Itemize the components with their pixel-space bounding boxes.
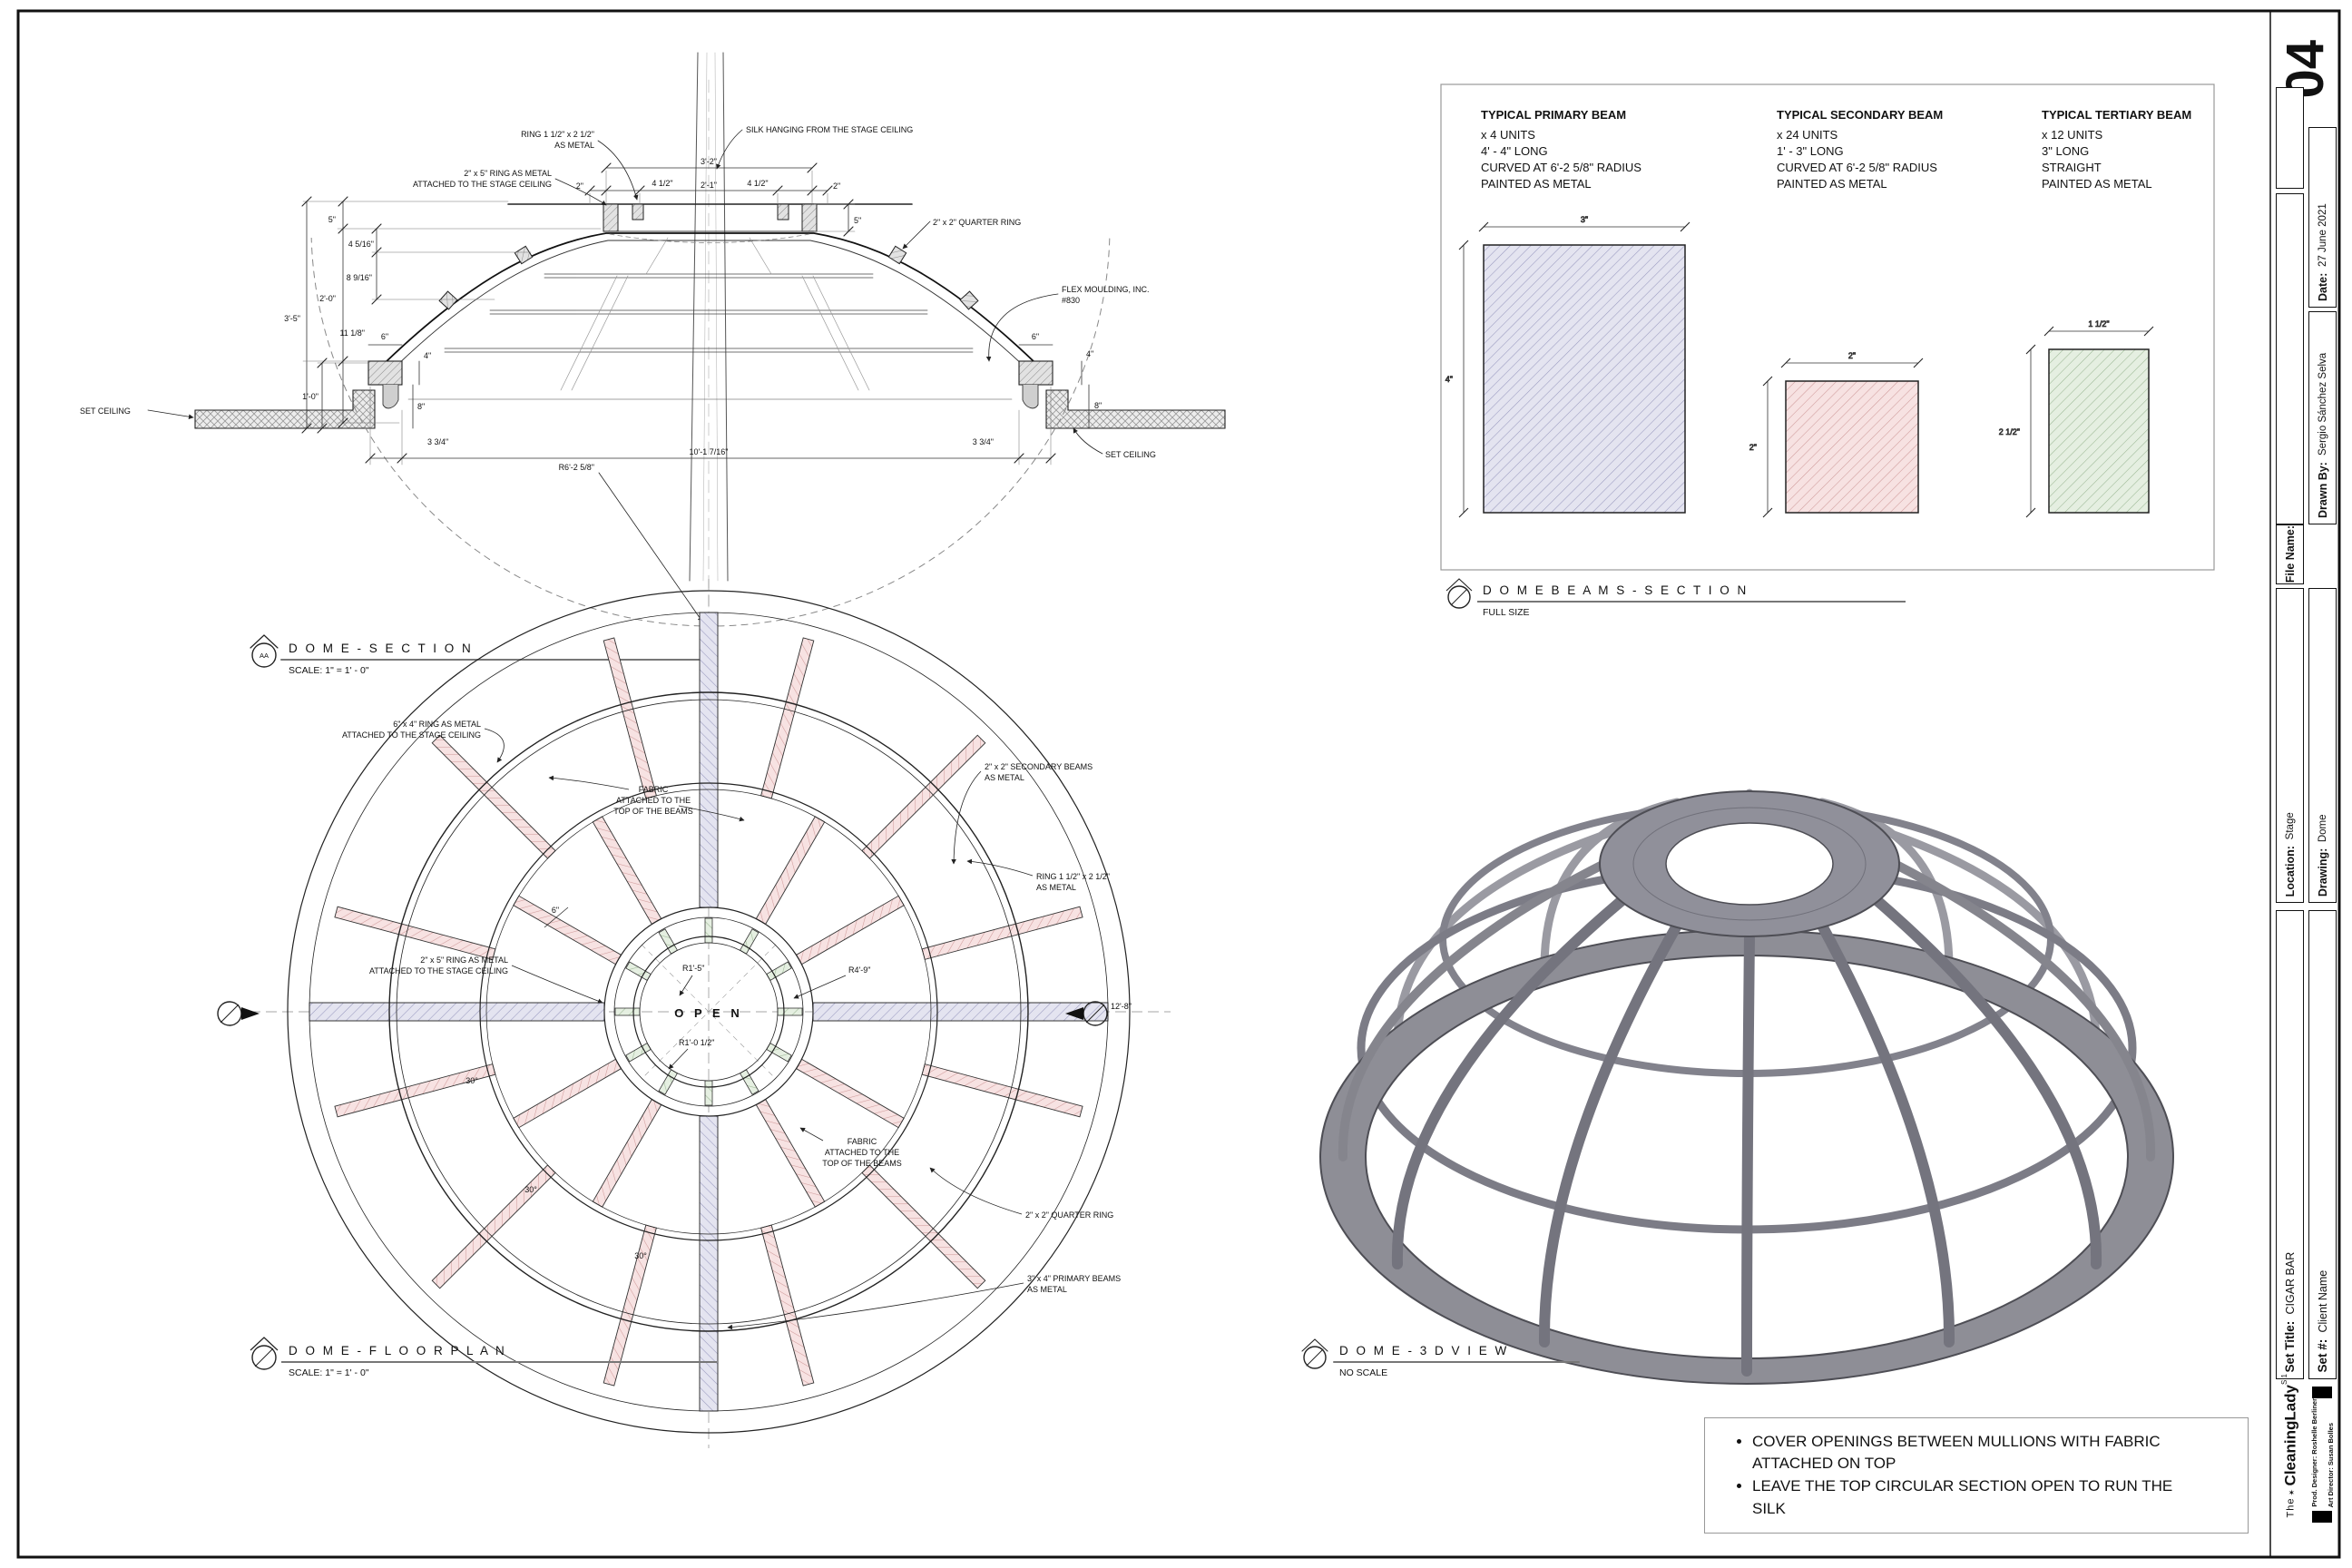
beam-spec-line: x 24 UNITS [1777, 128, 1838, 142]
title-block: 04 File Name: Location:Stage Set Title:C… [2270, 11, 2339, 1557]
field-value: Stage [2285, 812, 2296, 839]
field-value: CIGAR BAR [2284, 1252, 2297, 1315]
dim-label: 4 5/16" [348, 240, 374, 249]
field-label: Set Title: [2283, 1321, 2297, 1373]
drawing-title: D O M E - S E C T I O N [289, 642, 473, 655]
annotation: TOP OF THE BEAMS [613, 807, 693, 816]
moulding-and-ceiling [195, 361, 1225, 428]
notes-box: COVER OPENINGS BETWEEN MULLIONS WITH FAB… [1704, 1417, 2249, 1534]
dim-label: 4 1/2" [747, 179, 768, 188]
beam-spec-line: x 4 UNITS [1481, 128, 1535, 142]
dim-label: 5" [328, 215, 336, 224]
note-item: COVER OPENINGS BETWEEN MULLIONS WITH FAB… [1752, 1431, 2188, 1475]
annotation: RING 1 1/2" x 2 1/2" [521, 130, 594, 139]
annotation: ATTACHED TO THE [825, 1148, 899, 1157]
beam-spec-text: TYPICAL PRIMARY BEAM x 4 UNITS 4' - 4" L… [1481, 108, 2191, 191]
drawing-sheet: SILK HANGING FROM THE STAGE CEILING RING… [0, 0, 2352, 1568]
dim-label: 30° [465, 1076, 478, 1085]
dim-label: 4" [424, 351, 431, 360]
titleblock-drawing: Drawing:Dome [2308, 588, 2337, 903]
sheet-canvas: SILK HANGING FROM THE STAGE CEILING RING… [0, 0, 2352, 1568]
drawing-title: D O M E - 3 D V I E W [1339, 1344, 1509, 1357]
dim-label: 30° [524, 1185, 537, 1194]
dim-label: 10'-1 7/16" [690, 447, 729, 456]
dim-label: 5" [854, 216, 861, 225]
dome-floor-plan-drawing: 6" x 4" RING AS METAL ATTACHED TO THE ST… [218, 579, 1171, 1448]
dim-label: 2" [1749, 443, 1757, 452]
dim-label: R4'-9" [848, 965, 870, 975]
dim-label: 11 1/8" [339, 328, 365, 338]
dim-label: 3 3/4" [973, 437, 994, 446]
drawing-scale: NO SCALE [1339, 1367, 1387, 1378]
titleblock-empty-box [2276, 193, 2304, 524]
beam-spec-line: 1' - 3" LONG [1777, 144, 1844, 158]
logo-superscript: S.1 [2280, 1374, 2288, 1385]
annotation: ATTACHED TO THE STAGE CEILING [413, 180, 552, 189]
field-value: Client Name [2317, 1270, 2329, 1333]
annotation: FABRIC [639, 785, 669, 794]
annotation: SILK HANGING FROM THE STAGE CEILING [746, 125, 913, 134]
annotation: #830 [1062, 296, 1080, 305]
floor-plan-title: D O M E - F L O O R P L A N SCALE: 1" = … [250, 1338, 717, 1378]
note-item: LEAVE THE TOP CIRCULAR SECTION OPEN TO R… [1752, 1475, 2188, 1520]
company-logo: The✶CleaningLadyS.1 [2276, 1387, 2304, 1523]
annotation: TOP OF THE BEAMS [822, 1159, 902, 1168]
sun-icon: ✶ [2286, 1486, 2295, 1495]
titleblock-location: Location:Stage [2276, 588, 2304, 903]
dim-label: 2" [576, 181, 583, 191]
ring-blocks [603, 204, 817, 231]
credit-line: Art Director: Susan Bolles [2327, 1423, 2335, 1507]
dome-section-drawing: SILK HANGING FROM THE STAGE CEILING RING… [80, 0, 1225, 676]
dim-label: 8 9/16" [347, 273, 372, 282]
dim-label: 8" [417, 402, 425, 411]
field-label: Drawing: [2317, 848, 2329, 897]
beam-spec-line: STRAIGHT [2042, 161, 2102, 174]
logo-text-main: CleaningLady [2281, 1385, 2298, 1485]
field-label: Location: [2284, 846, 2297, 897]
annotation: SET CEILING [80, 407, 131, 416]
beam-spec-line: x 12 UNITS [2042, 128, 2103, 142]
annotation: 2" x 5" RING AS METAL [464, 169, 552, 178]
annotation: 2" x 2" QUARTER RING [933, 218, 1021, 227]
drawing-scale: FULL SIZE [1483, 607, 1530, 618]
dim-label: R1'-0 1/2" [679, 1038, 714, 1047]
annotation: RING 1 1/2" x 2 1/2" [1036, 872, 1110, 881]
dome-3d-view: D O M E - 3 D V I E W NO SCALE [1302, 791, 2173, 1384]
dim-label: 3'-5" [284, 314, 300, 323]
beam-spec-line: PAINTED AS METAL [1777, 177, 1887, 191]
dim-label: 12'-8" [1111, 1002, 1132, 1011]
field-label: Set #: [2316, 1339, 2329, 1373]
annotation: 2" x 5" RING AS METAL [420, 955, 508, 965]
titleblock-date: Date:27 June 2021 [2308, 127, 2337, 308]
dim-label: 30° [634, 1251, 647, 1260]
field-value: Dome [2318, 814, 2328, 842]
logo-text-the: The [2285, 1497, 2296, 1517]
dim-label: 6" [381, 332, 388, 341]
field-label: Drawn By: [2317, 462, 2329, 518]
annotation: FLEX MOULDING, INC. [1062, 285, 1150, 294]
dim-label: 4 1/2" [652, 179, 672, 188]
annotation: ATTACHED TO THE STAGE CEILING [342, 730, 481, 740]
dim-label: 2'-1" [701, 181, 717, 190]
field-value: Sergio Sánchez Selva [2318, 353, 2328, 456]
beam-spec-line: 4' - 4" LONG [1481, 144, 1548, 158]
annotation: 2" x 2" SECONDARY BEAMS [985, 762, 1093, 771]
titleblock-set-number: Set #:Client Name [2308, 910, 2337, 1379]
dim-label: 1 1/2" [2088, 319, 2109, 328]
annotation: SET CEILING [1105, 450, 1156, 459]
beam-spec-line: CURVED AT 6'-2 5/8" RADIUS [1481, 161, 1641, 174]
annotation: 6" x 4" RING AS METAL [393, 720, 481, 729]
credit-line: Prod. Designer: Roshelle Berliner [2310, 1398, 2318, 1507]
annotation: ATTACHED TO THE STAGE CEILING [369, 966, 508, 975]
dim-label: 2'-0" [319, 294, 336, 303]
field-label: File Name: [2284, 525, 2297, 583]
top-ring [1600, 791, 1899, 936]
dim-label: 3 3/4" [427, 437, 448, 446]
drawing-title: D O M E B E A M S - S E C T I O N [1483, 583, 1749, 597]
dim-label: 3'-2" [701, 157, 717, 166]
beam-title: TYPICAL SECONDARY BEAM [1777, 108, 1943, 122]
annotation: AS METAL [1027, 1285, 1067, 1294]
titleblock-drawn-by: Drawn By:Sergio Sánchez Selva [2308, 311, 2337, 524]
dim-label: 1'-0" [302, 392, 318, 401]
dim-label: 6" [1032, 332, 1039, 341]
titleblock-file-name: File Name: [2276, 524, 2304, 584]
plan-leaders [485, 729, 1033, 1328]
titleblock-empty-box [2276, 87, 2304, 189]
beam-spec-line: PAINTED AS METAL [1481, 177, 1592, 191]
dim-label: 6" [552, 906, 559, 915]
beam-spec-line: CURVED AT 6'-2 5/8" RADIUS [1777, 161, 1937, 174]
dim-label: 4" [1445, 375, 1453, 384]
beams-title: D O M E B E A M S - S E C T I O N FULL S… [1446, 579, 1906, 618]
beam-title: TYPICAL TERTIARY BEAM [2042, 108, 2191, 122]
dim-label: 2" [1848, 351, 1856, 360]
beam-title: TYPICAL PRIMARY BEAM [1481, 108, 1626, 122]
dim-label: 4" [1086, 349, 1093, 358]
open-label: O P E N [674, 1006, 742, 1020]
beam-section-shapes [1484, 245, 2149, 513]
credits: Prod. Designer: Roshelle Berliner Art Di… [2308, 1387, 2337, 1523]
beam-spec-line: PAINTED AS METAL [2042, 177, 2152, 191]
dim-label: 3" [1581, 215, 1588, 224]
drawing-scale: SCALE: 1" = 1' - 0" [289, 1367, 369, 1378]
annotation: 3" x 4" PRIMARY BEAMS [1027, 1274, 1121, 1283]
annotation: AS METAL [1036, 883, 1076, 892]
dim-label: R1'-5" [682, 964, 704, 973]
beam-spec-line: 3" LONG [2042, 144, 2089, 158]
annotation: FABRIC [848, 1137, 877, 1146]
annotation: AS METAL [985, 773, 1024, 782]
titleblock-set-title: Set Title:CIGAR BAR [2276, 910, 2304, 1379]
dim-label: 8" [1094, 401, 1102, 410]
annotation: 2" x 2" QUARTER RING [1025, 1210, 1113, 1220]
annotation: AS METAL [554, 141, 594, 150]
field-value: 27 June 2021 [2318, 203, 2328, 267]
drawing-title: D O M E - F L O O R P L A N [289, 1344, 506, 1357]
dim-label: R6'-2 5/8" [559, 463, 594, 472]
dim-label: 2" [833, 181, 840, 191]
view-marker: AA [260, 652, 269, 660]
field-label: Date: [2317, 273, 2329, 301]
dim-label: 2 1/2" [1999, 427, 2020, 436]
annotation: ATTACHED TO THE [616, 796, 691, 805]
beam-sections-panel: TYPICAL PRIMARY BEAM x 4 UNITS 4' - 4" L… [1441, 84, 2214, 618]
drawing-scale: SCALE: 1" = 1' - 0" [289, 665, 369, 676]
